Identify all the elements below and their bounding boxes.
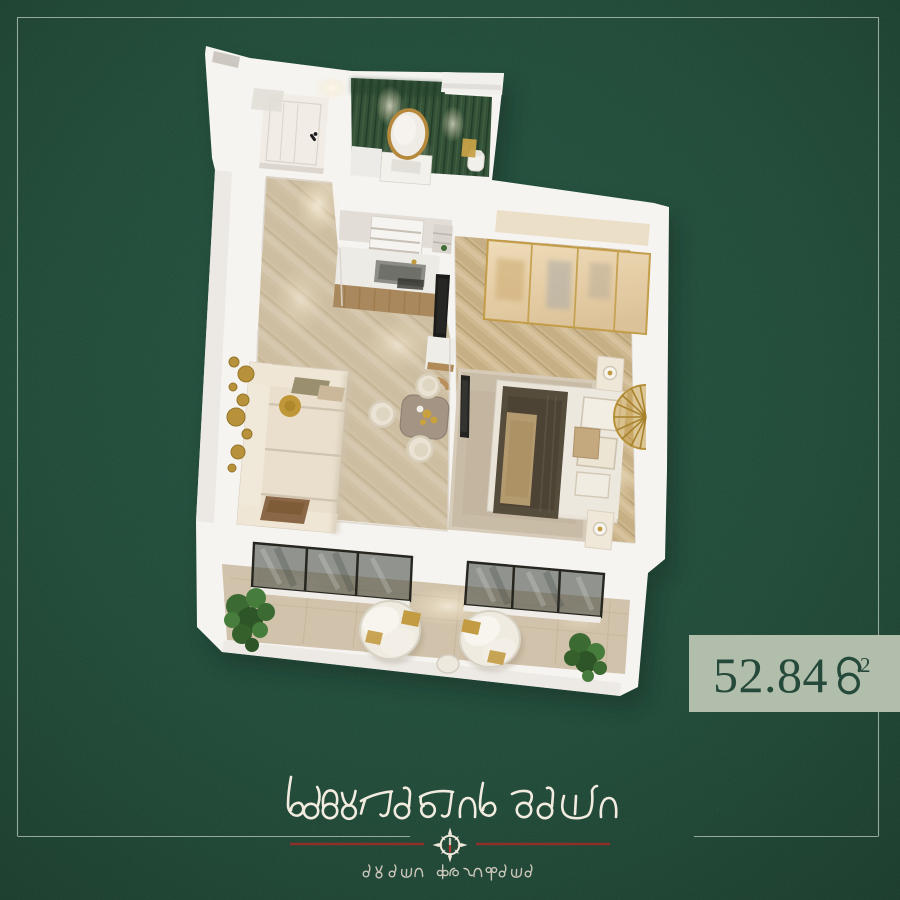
svg-text:2: 2 [860, 653, 871, 677]
svg-text:52.84: 52.84 [713, 647, 828, 703]
